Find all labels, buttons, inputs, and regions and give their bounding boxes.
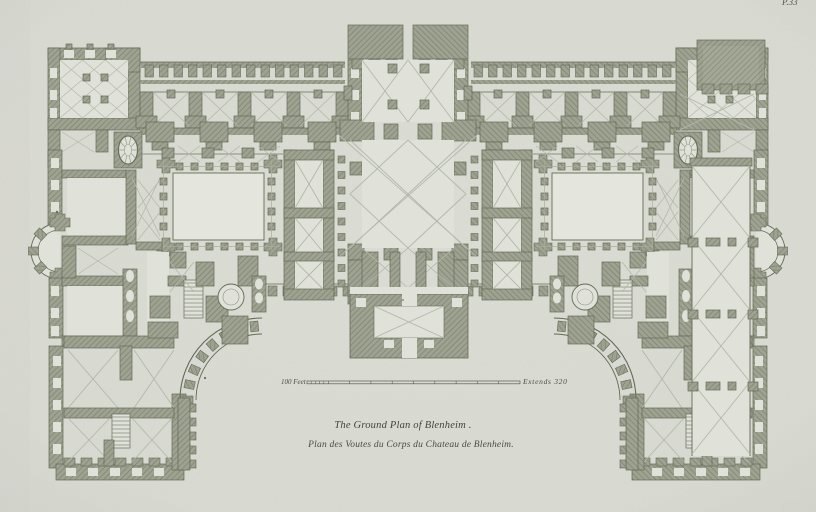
svg-text:Plan des Voutes du Corps du C: Plan des Voutes du Corps du Chateau de B… xyxy=(307,440,514,450)
svg-text:100 Feet: 100 Feet xyxy=(281,378,307,386)
svg-text:The Ground Plan of Blenheim .: The Ground Plan of Blenheim . xyxy=(334,420,471,431)
svg-text:P.33: P.33 xyxy=(781,0,798,7)
svg-text:Extends 320: Extends 320 xyxy=(522,377,568,386)
